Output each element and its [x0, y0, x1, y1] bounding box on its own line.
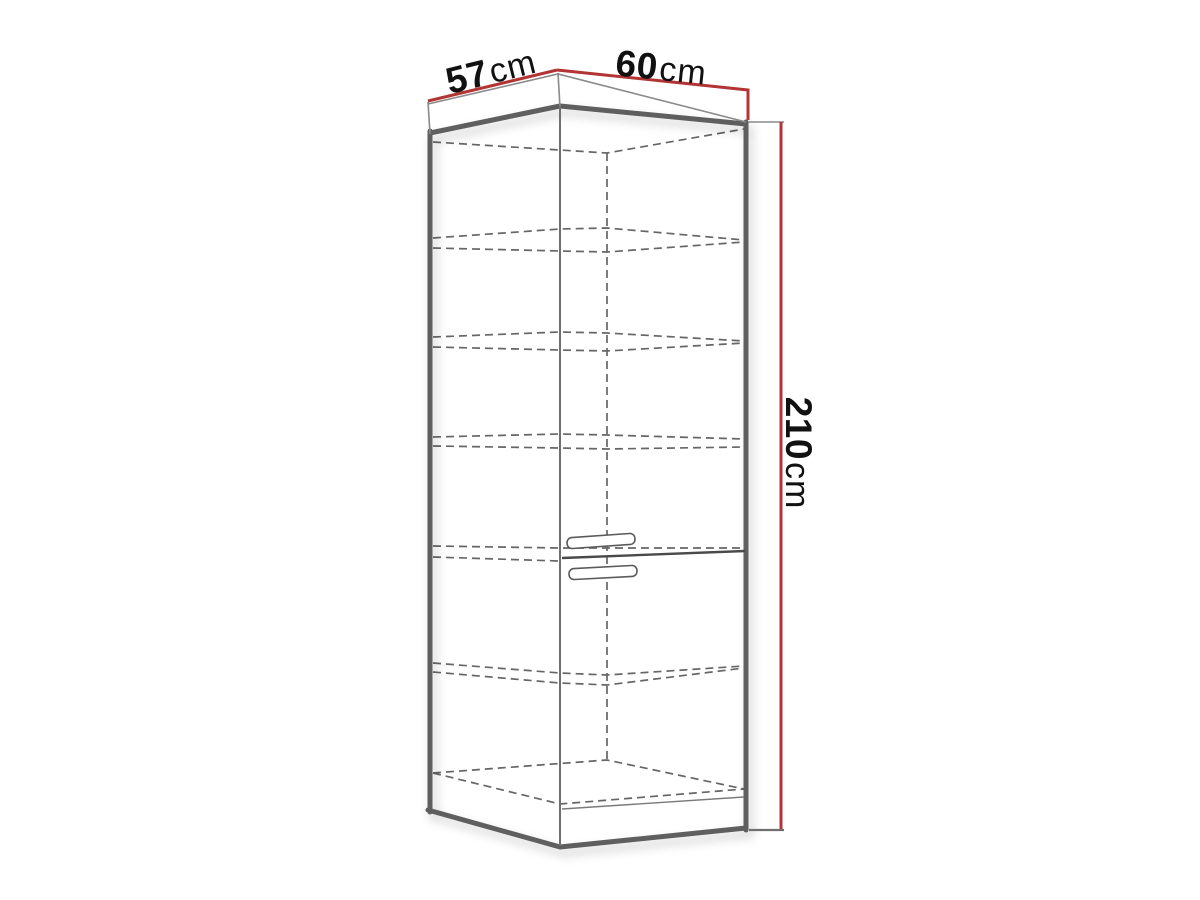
interior-dashed-lines [433, 129, 744, 804]
cabinet-bottom-edge [428, 810, 746, 847]
shelf-dashed-line [433, 228, 744, 240]
handle-upper-door [567, 533, 636, 549]
top-panel-dashed [433, 129, 744, 153]
cabinet-drawing: 57cm 60cm 210cm [0, 0, 1200, 900]
plinth-line [562, 797, 744, 809]
cabinet-outline [428, 106, 746, 847]
shelf-dashed-line [433, 434, 744, 439]
shelf-dashed-line [433, 446, 744, 449]
shelf-dashed-line [433, 668, 744, 685]
shelf-dashed-line [433, 332, 744, 341]
dimension-diagram: 57cm 60cm 210cm [0, 0, 1200, 900]
dimension-lines [428, 70, 784, 831]
handle-lower-door [569, 565, 637, 580]
bottom-panel-dashed [433, 773, 744, 804]
bottom-panel-dashed [433, 760, 744, 789]
shelf-dashed-line [433, 557, 559, 561]
dimension-label-top-right: 60cm [614, 42, 709, 92]
dimension-label-top-left: 57cm [442, 40, 541, 102]
door-split-line [562, 551, 745, 558]
dimension-label-height: 210cm [778, 397, 819, 510]
top-center-sliver-edge [558, 73, 560, 107]
shelf-dashed-line [433, 343, 744, 351]
shelf-dashed-line [433, 242, 744, 252]
cabinet-thin-lines [428, 73, 746, 846]
